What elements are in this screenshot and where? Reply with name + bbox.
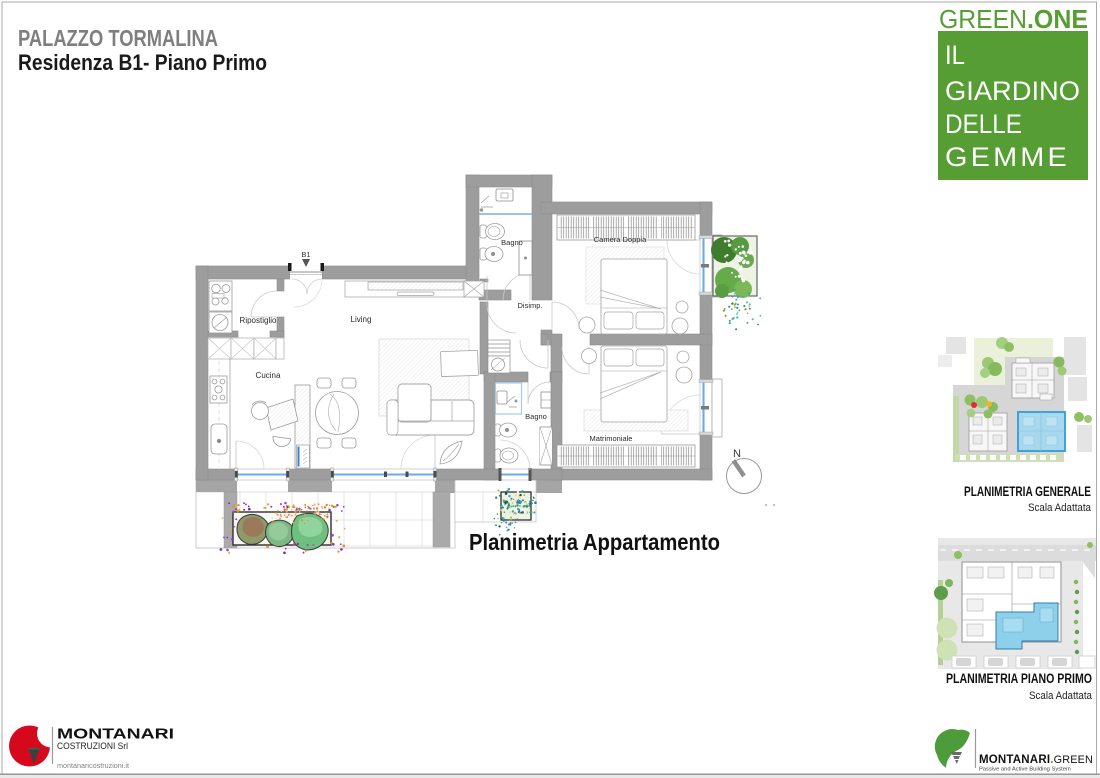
svg-text:MONTANARI: MONTANARI (57, 726, 174, 743)
svg-text:montanaricostruzioni.it: montanaricostruzioni.it (57, 761, 130, 770)
svg-text:Ripostiglio: Ripostiglio (240, 316, 277, 325)
svg-text:GIARDINO: GIARDINO (945, 76, 1080, 106)
svg-text:Scala Adattata: Scala Adattata (1028, 502, 1092, 514)
svg-text:PLANIMETRIA GENERALE: PLANIMETRIA GENERALE (964, 484, 1091, 499)
svg-text:Disimp.: Disimp. (517, 301, 542, 310)
svg-text:Living: Living (351, 315, 372, 324)
svg-text:DELLE: DELLE (945, 109, 1022, 139)
svg-text:Passive and Active Building Sy: Passive and Active Building System (979, 767, 1071, 773)
svg-text:B1: B1 (301, 250, 310, 259)
svg-text:COSTRUZIONI Srl: COSTRUZIONI Srl (57, 741, 128, 752)
svg-text:Bagno: Bagno (525, 412, 547, 421)
svg-text:Residenza B1- Piano Primo: Residenza B1- Piano Primo (18, 50, 267, 75)
svg-text:PLANIMETRIA PIANO PRIMO: PLANIMETRIA PIANO PRIMO (946, 671, 1092, 686)
svg-text:.ONE: .ONE (1027, 6, 1088, 34)
svg-text:MONTANARI.GREEN: MONTANARI.GREEN (979, 754, 1093, 766)
svg-text:Planimetria Appartamento: Planimetria Appartamento (469, 529, 720, 555)
svg-text:Matrimoniale: Matrimoniale (590, 434, 633, 443)
svg-text:Bagno: Bagno (501, 238, 523, 247)
svg-text:GEMME: GEMME (945, 142, 1070, 172)
svg-text:N: N (733, 448, 741, 460)
svg-text:IL: IL (945, 40, 965, 70)
svg-text:GREEN: GREEN (939, 6, 1027, 34)
svg-text:Cucina: Cucina (256, 371, 281, 380)
svg-text:Scala Adattata: Scala Adattata (1029, 690, 1093, 702)
svg-text:Camera Doppia: Camera Doppia (594, 235, 647, 244)
svg-text:PALAZZO TORMALINA: PALAZZO TORMALINA (18, 25, 218, 51)
